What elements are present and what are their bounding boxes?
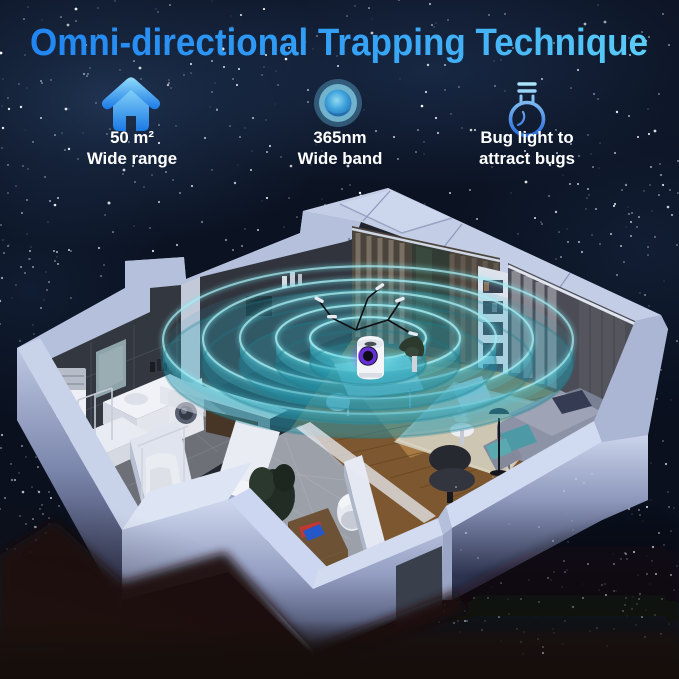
svg-text:Wide band: Wide band xyxy=(298,149,383,168)
svg-text:365nm: 365nm xyxy=(313,128,366,147)
svg-text:attract bugs: attract bugs xyxy=(479,149,575,168)
svg-text:Wide range: Wide range xyxy=(87,149,177,168)
svg-text:50 m²: 50 m² xyxy=(110,128,154,147)
svg-text:Bug light to: Bug light to xyxy=(480,128,573,147)
svg-text:Omni-directional Trapping Tech: Omni-directional Trapping Technique xyxy=(30,22,648,64)
